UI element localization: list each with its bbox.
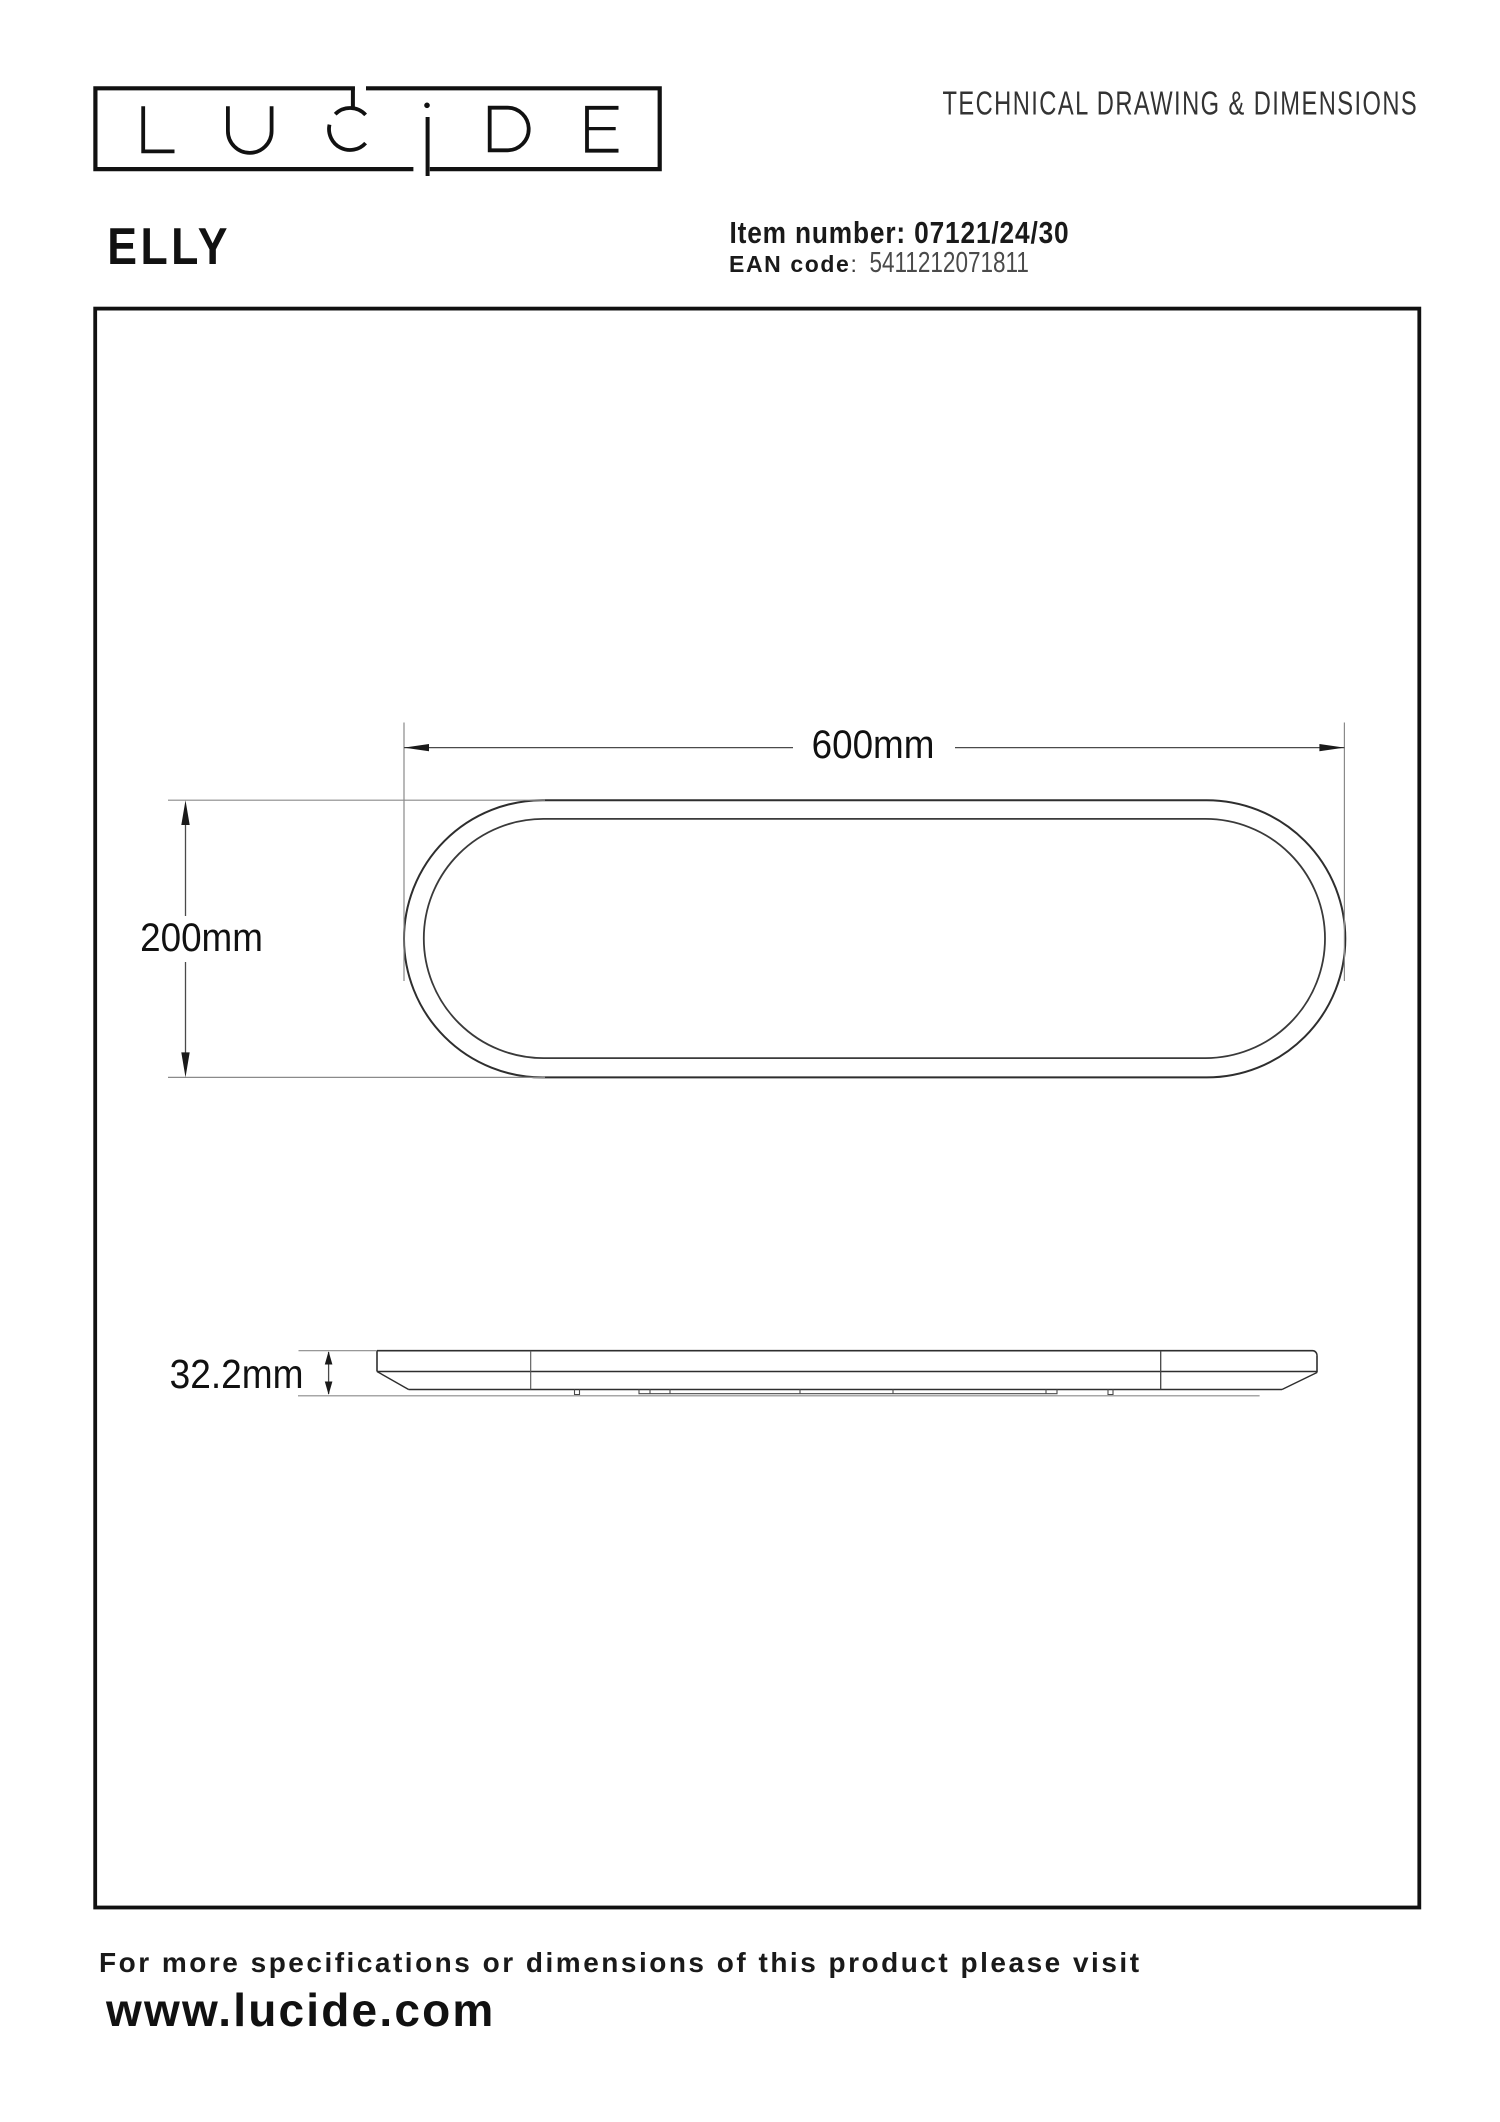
svg-text:For more specifications or dim: For more specifications or dimensions of… [99,1947,1142,1978]
svg-text:32.2mm: 32.2mm [170,1352,304,1397]
svg-text:200mm: 200mm [140,916,263,961]
svg-text:EAN code:: EAN code: [729,251,858,277]
svg-text:600mm: 600mm [812,723,935,768]
svg-text:ELLY: ELLY [107,218,231,276]
svg-text:TECHNICAL DRAWING & DIMENSIONS: TECHNICAL DRAWING & DIMENSIONS [943,86,1419,123]
svg-text:www.lucide.com: www.lucide.com [105,1984,496,2036]
svg-text:5411212071811: 5411212071811 [870,248,1029,279]
svg-text:Item number: 07121/24/30: Item number: 07121/24/30 [730,216,1070,251]
